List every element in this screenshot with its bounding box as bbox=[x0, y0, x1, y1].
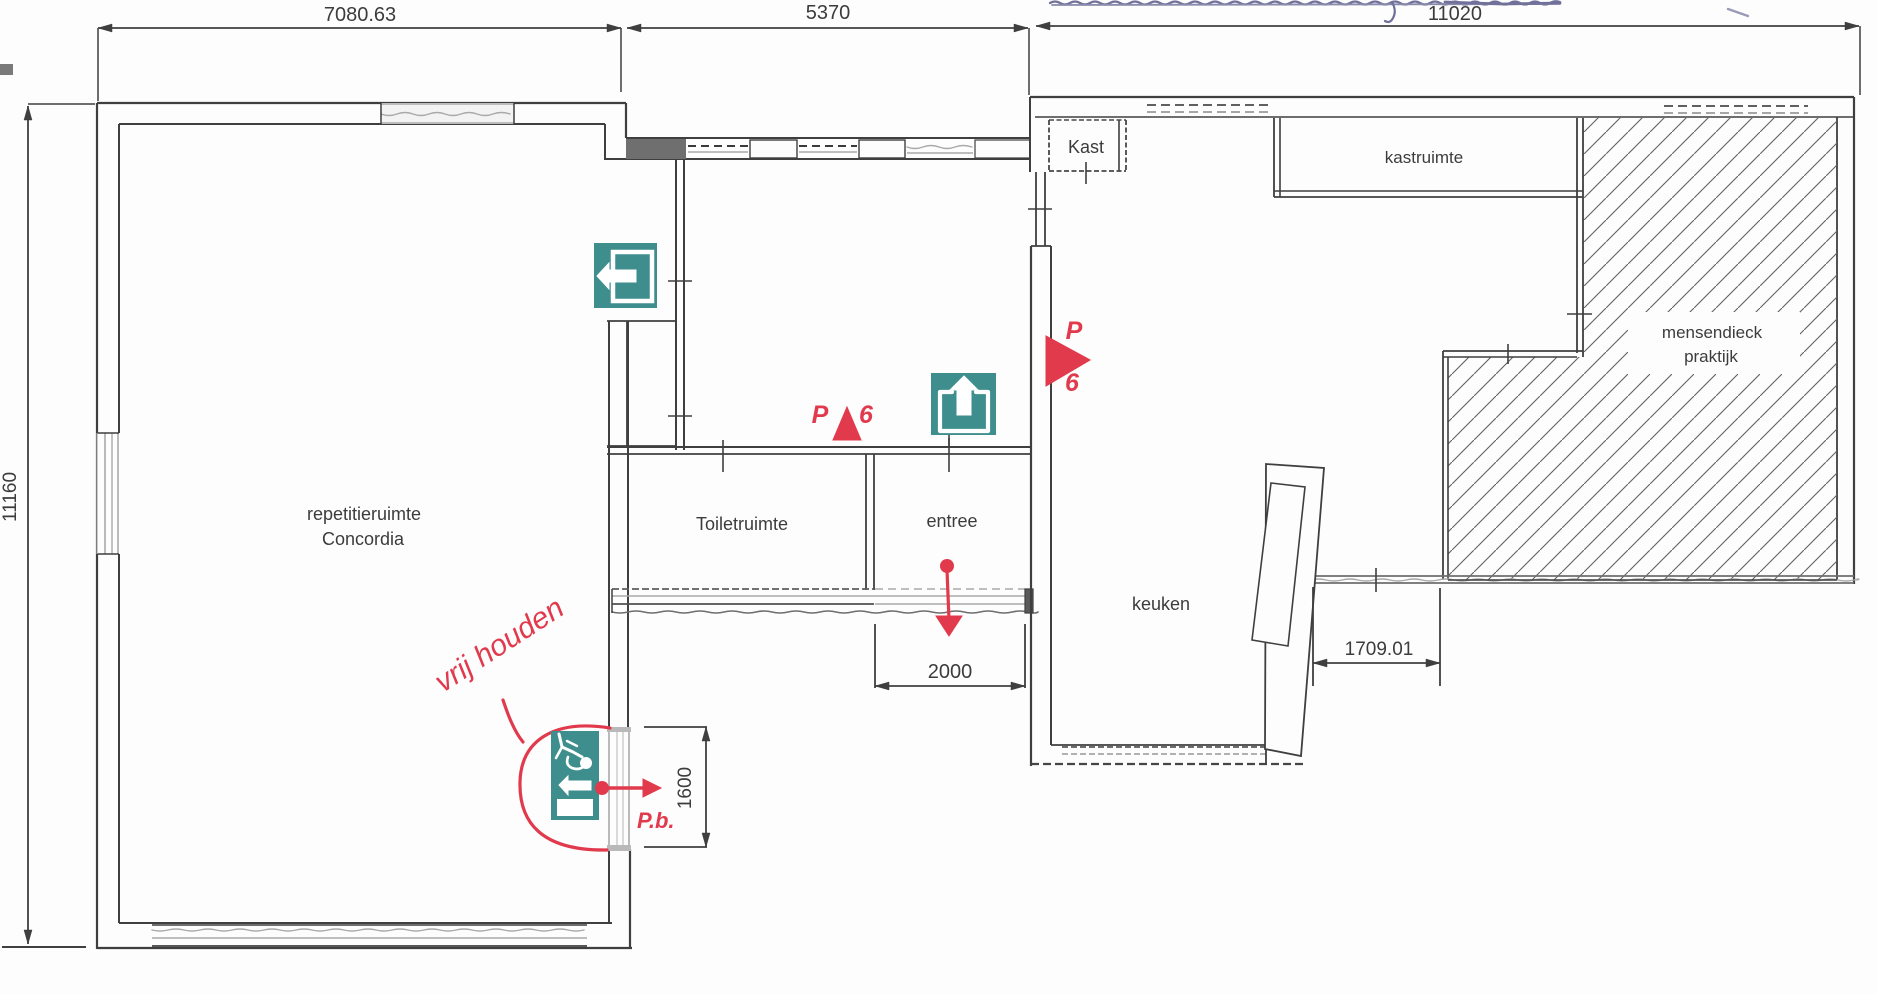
svg-text:Toiletruimte: Toiletruimte bbox=[696, 514, 788, 534]
svg-text:5370: 5370 bbox=[806, 2, 851, 24]
svg-text:repetitieruimte: repetitieruimte bbox=[307, 504, 421, 524]
svg-text:P.b.: P.b. bbox=[637, 808, 675, 833]
svg-text:praktijk: praktijk bbox=[1684, 347, 1738, 366]
svg-text:11160: 11160 bbox=[0, 472, 21, 522]
svg-text:Concordia: Concordia bbox=[322, 529, 405, 549]
svg-text:6: 6 bbox=[1065, 369, 1080, 397]
svg-text:P: P bbox=[812, 401, 829, 429]
svg-text:entree: entree bbox=[926, 511, 977, 531]
svg-text:2000: 2000 bbox=[928, 661, 973, 683]
svg-text:Kast: Kast bbox=[1068, 137, 1104, 157]
svg-text:7080.63: 7080.63 bbox=[324, 4, 396, 26]
svg-text:P: P bbox=[1066, 317, 1083, 345]
svg-text:1600: 1600 bbox=[675, 767, 696, 809]
svg-text:mensendieck: mensendieck bbox=[1662, 323, 1763, 342]
svg-text:11020: 11020 bbox=[1428, 3, 1482, 25]
svg-text:1709.01: 1709.01 bbox=[1345, 639, 1414, 660]
svg-text:kastruimte: kastruimte bbox=[1385, 148, 1463, 167]
svg-text:6: 6 bbox=[859, 401, 874, 429]
svg-text:keuken: keuken bbox=[1132, 594, 1190, 614]
